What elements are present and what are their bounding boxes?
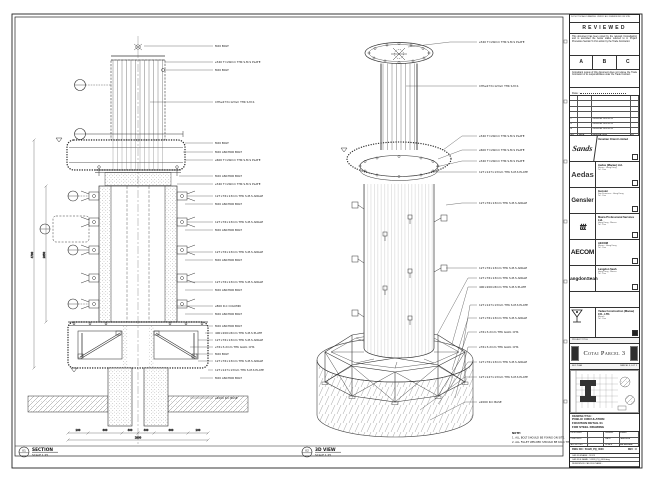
callout-label: ⌀340 T=20mm THK S.M.S PLATE [215, 60, 261, 64]
callout-label: ⌀76×3.2mm THK GALV. CHS [479, 330, 519, 334]
callout-label: 127×127×13mm THK S.M.S PLATE [479, 170, 528, 174]
keyplan-graphic[interactable] [570, 370, 639, 413]
dim-label: 400 [128, 428, 133, 432]
drawing-title-line: FOR STEEL DRAWING [570, 426, 639, 430]
callout-label: ⌀76×3.2mm THK GALV. CHS [479, 345, 519, 349]
view-scale: SCALE 1:25 [315, 453, 331, 457]
callout-label: 127×76×13mm THK S.M.S ANGLE [479, 276, 527, 280]
approval-checkbox[interactable] [632, 284, 638, 290]
callout-label: 127×76×13mm THK S.M.S ANGLE [479, 266, 527, 270]
callout-label: M20 ANCHOR BOLT [215, 288, 242, 292]
callout-label: M20 BOLT [215, 68, 229, 72]
callout-label: 127×76×13mm THK S.M.S ANGLE [215, 194, 263, 198]
dwg-rev: REV : C [628, 448, 637, 452]
note-line: 1. ALL BOLT SHOULD BE FIXING ON SITE. [512, 436, 565, 440]
callout-label: ⌀340 T=20mm THK S.M.S PLATE [479, 134, 525, 138]
callout-label: 127×76×13mm THK S.M.S ANGLE [215, 359, 263, 363]
callout-label: ⌀600 T=20mm THK S.M.S PLATE [479, 148, 525, 152]
callout-label: 127×76×13mm THK S.M.S ANGLE [215, 220, 263, 224]
approval-checkbox[interactable] [632, 154, 638, 160]
callout-label: 127×76×13mm THK S.M.S ANGLE [479, 201, 527, 205]
callout-label: M20 BOLT [215, 141, 229, 145]
dwg-number-row: DWG NO : 51928_PQ_0000 REV : C [570, 447, 639, 454]
dim-label: 800 [103, 428, 108, 432]
callout-label: 127×76×13mm THK S.M.S ANGLE [215, 250, 263, 254]
company-row-aedas: Aedas Aedas (Macau) Ltd.Macau · Hong Kon… [570, 162, 639, 188]
callout-label: M20 ANCHOR BOLT [215, 312, 242, 316]
title-block: DO NOT SCALE DRAWING. VERIFY ALL DIMENSI… [569, 14, 640, 468]
company-address: Tel · Fax [598, 247, 637, 250]
callout-label: ⌀2000 R.C BASE [215, 396, 238, 400]
reviewed-paragraph-2: Consultant review of this document does … [570, 70, 639, 88]
callout-label: M20 ANCHOR BOLT [215, 376, 242, 380]
dwg-number: DWG NO : 51928_PQ_0000 [572, 448, 604, 452]
date-label: Date : [572, 91, 579, 95]
callout-label: M20 ANCHOR BOLT [215, 228, 242, 232]
sands-logo: Sands [570, 136, 598, 161]
callout-label: 400×200×8mm THK S.M.S PLATE [215, 331, 262, 335]
callout-label: M20 ANCHOR BOLT [215, 202, 242, 206]
review-status-boxes: A B C [570, 56, 639, 70]
approval-checkbox[interactable] [632, 206, 638, 212]
company-address: Tel · Fax [598, 273, 637, 276]
cad-line-art: 200 800 400 400 800 200 2800 4700 2850 M… [0, 0, 650, 488]
status-box-c[interactable]: C [617, 56, 639, 69]
company-row-venetian: Sands Venetian Orient Limited [570, 136, 639, 162]
callout-label: 127×76×13mm THK S.M.S ANGLE [479, 360, 527, 364]
view-scale: SCALE 1:25 [32, 453, 48, 457]
reviewed-stamp-title: REVIEWED [570, 23, 639, 34]
contractor-logo [570, 308, 596, 337]
contractor-mark [632, 330, 638, 336]
ornament-left [571, 346, 579, 361]
callout-label: ⌀800 R.C COLUMN [215, 304, 241, 308]
company-address: Tel · Fax [598, 169, 637, 172]
callout-label: ⌀340 T=20mm THK S.M.S PLATE [479, 159, 525, 163]
project-name-band: Cotai Parcel 3 [570, 344, 639, 364]
keyplan-label: KEY PLAN [572, 365, 582, 369]
callout-label: 127×127×13mm THK S.M.S PLATE [479, 375, 528, 379]
callout-label: 127×127×13mm THK S.M.S PLATE [215, 368, 264, 372]
date-fill-line[interactable] [580, 90, 626, 94]
approval-checkbox[interactable] [632, 232, 638, 238]
keyplan-parcel-label: PARCEL 3, LOT 2 [620, 365, 637, 369]
note-line: 2. ALL FILLET WELDED SHOULD BE 6mm THK. [512, 440, 572, 444]
drawing-title-box: DRAWING TITLE : PUBLIC CIRCULATION FOUNT… [570, 414, 639, 432]
callout-label: ⌀76×3.2mm THK GALV. CHS [215, 345, 255, 349]
blank-consultant-box [570, 292, 639, 308]
reviewed-paragraph-1: This document has been noted by the rele… [570, 34, 639, 56]
approval-checkbox[interactable] [632, 258, 638, 264]
callout-label: M20 ANCHOR BOLT [215, 258, 242, 262]
callout-label: 400×200×8mm THK S.M.S PLATE [479, 285, 526, 289]
callout-label: ⌀2000 R.C BASE [479, 400, 502, 404]
ornament-right [630, 346, 638, 361]
signoff-fields: DESIGNEDDRAWNLUHO CHECKED-DATEJUN 2015 A… [570, 432, 639, 447]
callout-label: M20 BOLT [215, 44, 229, 48]
callout-label: ⌀600 T=20mm THK S.M.S PLATE [215, 158, 261, 162]
company-row-gensler: Gensler GenslerSan Francisco · Hong Kong… [570, 188, 639, 214]
contractor-row: Yadea Construction (Macau) CO., LTD.Maca… [570, 308, 639, 338]
company-address: Tel · Fax [598, 224, 637, 227]
company-row-aecom: AECOM AECOMMacau · Hong KongTel · Fax [570, 240, 639, 266]
callout-label: M20 BOLT [215, 352, 229, 356]
company-name: Venetian Orient Limited [598, 138, 637, 141]
callout-label: 127×76×13mm THK S.M.S ANGLE [215, 338, 263, 342]
aedas-logo: Aedas [570, 162, 596, 187]
callout-label: CHS⌀273×12mm THK S.M.S [479, 84, 519, 88]
drawing-sheet: 200 800 400 400 800 200 2800 4700 2850 M… [0, 0, 650, 488]
dim-height: 4700 [30, 251, 34, 258]
callout-label: CHS⌀273×12mm THK S.M.S [215, 100, 255, 104]
callout-label: ⌀340 T=20mm THK S.M.S PLATE [479, 40, 525, 44]
approval-checkbox[interactable] [632, 180, 638, 186]
project-name: Cotai Parcel 3 [579, 350, 630, 357]
cad-reference-row: REFERENCE CAD FILE NAME : [570, 462, 639, 466]
dim-inner: 2850 [42, 251, 46, 258]
callout-label: M20 ANCHOR BOLT [215, 324, 242, 328]
date-row: Date : [570, 88, 639, 96]
keyplan-thumbnail [570, 370, 639, 414]
status-box-b[interactable]: B [593, 56, 616, 69]
no-scale-note: DO NOT SCALE DRAWING. VERIFY ALL DIMENSI… [570, 15, 639, 23]
note-title: NOTE: [512, 431, 521, 435]
crane-glyph [570, 308, 584, 324]
project-title-label: PROJECT TITLE [572, 339, 588, 343]
dim-label: 200 [76, 428, 81, 432]
view-tag: 02 [305, 449, 309, 453]
company-row-langdonseah: LangdonSeah Langdon SeahHong Kong · Maca… [570, 266, 639, 292]
callout-label: M20 ANCHOR BOLT [215, 174, 242, 178]
callout-label: 127×127×13mm THK S.M.S PLATE [479, 303, 528, 307]
callout-label: ⌀340 T=20mm THK S.M.S PLATE [215, 182, 261, 186]
view-tag: 01 [22, 449, 26, 453]
dim-label: 800 [169, 428, 174, 432]
dim-label: 200 [196, 428, 201, 432]
ttt-logo: ttt [570, 214, 596, 239]
callout-label: 127×76×13mm THK S.M.S ANGLE [479, 316, 527, 320]
company-address: Tel · Fax [598, 195, 637, 198]
company-row-maica: ttt Maica Professional Services Ltd.Hong… [570, 214, 639, 240]
gensler-logo: Gensler [570, 188, 596, 213]
contractor-address: Tel · Fax [598, 318, 637, 321]
dim-label: 400 [144, 428, 149, 432]
status-box-a[interactable]: A [570, 56, 593, 69]
callout-label: 127×76×13mm THK S.M.S ANGLE [215, 280, 263, 284]
aecom-logo: AECOM [570, 240, 596, 265]
dim-total: 2800 [135, 436, 142, 440]
callout-label: M20 ANCHOR BOLT [215, 150, 242, 154]
revision-table: CGENERAL REVISION BGENERAL REVISION AGEN… [570, 96, 639, 136]
langdonseah-logo: LangdonSeah [570, 266, 596, 291]
